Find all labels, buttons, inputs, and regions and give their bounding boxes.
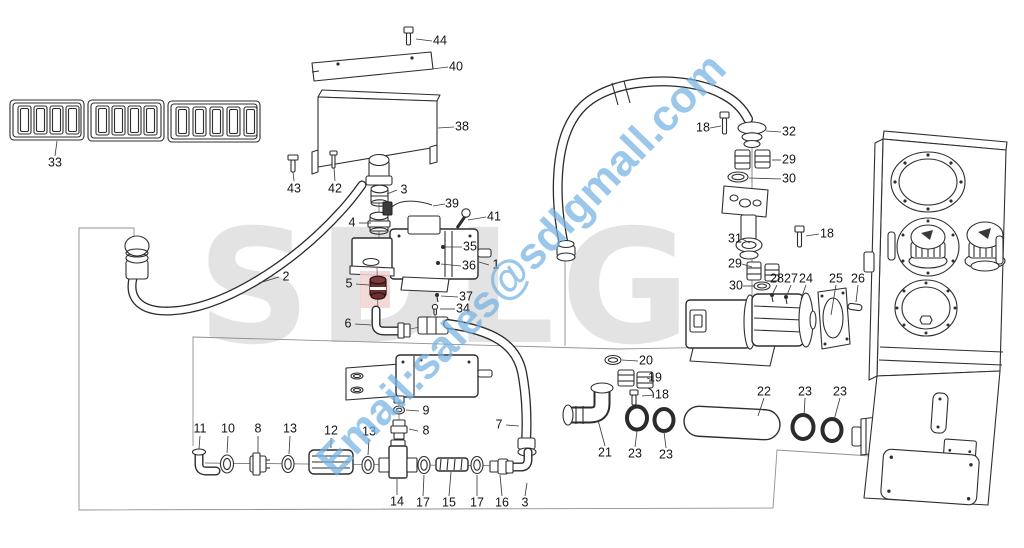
callout-2: 2 bbox=[283, 269, 290, 283]
callout-30: 30 bbox=[782, 171, 796, 185]
callout-40: 40 bbox=[449, 59, 463, 73]
elbow-32-flange bbox=[738, 122, 766, 148]
tank-bottom-slot-plate bbox=[931, 393, 949, 434]
callout-leader-17 bbox=[423, 475, 424, 496]
callout-28: 28 bbox=[770, 271, 784, 285]
switch-panel-1 bbox=[10, 100, 84, 140]
callout-6: 6 bbox=[345, 316, 352, 330]
fitting-16 bbox=[490, 459, 508, 474]
o-ring-20 bbox=[605, 356, 621, 365]
callout-33: 33 bbox=[48, 155, 62, 169]
callout-24: 24 bbox=[799, 271, 813, 285]
callout-leader-10 bbox=[227, 436, 228, 453]
switch-panel-3 bbox=[168, 101, 260, 142]
callout-leader-21 bbox=[598, 420, 605, 446]
flange-pipe-31 bbox=[722, 186, 768, 259]
clamp-23b bbox=[655, 409, 674, 431]
callout-leader-40 bbox=[432, 67, 448, 69]
callout-36: 36 bbox=[462, 258, 476, 272]
callout-25: 25 bbox=[829, 271, 843, 285]
callout-leader-18 bbox=[642, 395, 654, 396]
pump-24-assembly bbox=[686, 282, 862, 366]
clamp-23d bbox=[823, 419, 842, 441]
fitting-8-inline bbox=[250, 453, 270, 475]
callout-7: 7 bbox=[496, 417, 503, 431]
callout-leader-23 bbox=[834, 398, 840, 420]
callout-5: 5 bbox=[346, 276, 353, 290]
hose-2-connector bbox=[125, 236, 149, 279]
callout-leader-18 bbox=[806, 234, 819, 236]
callout-27: 27 bbox=[784, 271, 798, 285]
callout-17: 17 bbox=[470, 495, 484, 509]
callout-leader-26 bbox=[856, 285, 858, 302]
washer-30-upper bbox=[728, 172, 748, 182]
callout-39: 39 bbox=[445, 196, 459, 210]
callout-31: 31 bbox=[728, 231, 742, 245]
tee-14 bbox=[379, 440, 417, 478]
callout-42: 42 bbox=[328, 181, 342, 195]
callout-23: 23 bbox=[628, 446, 642, 460]
callout-13: 13 bbox=[283, 421, 297, 435]
callout-44: 44 bbox=[433, 33, 447, 47]
tank-access-plate bbox=[880, 449, 979, 506]
callout-16: 16 bbox=[495, 495, 509, 509]
tube-39-connector bbox=[383, 202, 392, 215]
tank-filler-flange bbox=[897, 218, 959, 276]
tube-22 bbox=[683, 406, 780, 441]
clamps-29-upper bbox=[735, 150, 770, 169]
bolt-36 bbox=[436, 261, 440, 265]
callout-18: 18 bbox=[696, 120, 710, 134]
callout-30: 30 bbox=[729, 278, 743, 292]
bolt-18-lower bbox=[630, 390, 638, 405]
callout-leader-23 bbox=[664, 432, 666, 448]
callout-20: 20 bbox=[639, 353, 653, 367]
o-ring-17b bbox=[471, 457, 483, 474]
switch-panel-2 bbox=[88, 100, 164, 141]
hydraulic-tank bbox=[864, 131, 1007, 505]
callout-8: 8 bbox=[255, 421, 262, 435]
exploded-parts-diagram: SDLG bbox=[0, 0, 1024, 548]
callout-22: 22 bbox=[757, 384, 771, 398]
callout-17: 17 bbox=[416, 495, 430, 509]
callout-18: 18 bbox=[655, 387, 669, 401]
callout-leader-44 bbox=[416, 39, 432, 41]
callout-18: 18 bbox=[820, 226, 834, 240]
o-ring-30-pump bbox=[754, 282, 770, 290]
callout-3: 3 bbox=[401, 182, 408, 196]
callout-leader-3 bbox=[525, 483, 527, 496]
callout-9: 9 bbox=[423, 403, 430, 417]
callout-leader-32 bbox=[766, 131, 781, 132]
bolt-18-upper bbox=[720, 112, 729, 134]
elbow-3-chain bbox=[506, 452, 528, 473]
callout-15: 15 bbox=[442, 495, 456, 509]
callout-8: 8 bbox=[423, 423, 430, 437]
o-ring-13a bbox=[282, 456, 294, 473]
callout-leader-18 bbox=[710, 126, 721, 128]
callout-41: 41 bbox=[487, 209, 501, 223]
tank-bottom-flange bbox=[895, 280, 957, 336]
callout-leader-13 bbox=[289, 436, 290, 454]
callout-23: 23 bbox=[659, 447, 673, 461]
callout-leader-30 bbox=[749, 178, 781, 179]
callout-leader-7 bbox=[506, 425, 519, 426]
callout-leader-16 bbox=[500, 475, 502, 496]
callout-10: 10 bbox=[221, 421, 235, 435]
bolt-44 bbox=[404, 27, 413, 45]
callout-43: 43 bbox=[287, 181, 301, 195]
callout-leader-28 bbox=[773, 285, 777, 293]
elbow-11 bbox=[193, 449, 217, 471]
hose-2-elbow bbox=[366, 155, 392, 186]
callout-leader-43 bbox=[293, 172, 294, 181]
tank-top-flange bbox=[891, 152, 965, 212]
callout-29: 29 bbox=[728, 256, 742, 270]
fitting-5 bbox=[370, 276, 386, 299]
tube-15 bbox=[436, 458, 468, 471]
callout-leader-42 bbox=[334, 168, 335, 181]
callout-leader-8 bbox=[409, 429, 418, 431]
o-ring-10 bbox=[221, 455, 234, 473]
callout-leader-38 bbox=[438, 127, 454, 128]
callout-leader-15 bbox=[449, 472, 451, 496]
callout-leader-33 bbox=[55, 141, 57, 156]
bolt-35 bbox=[441, 245, 445, 249]
callout-35: 35 bbox=[463, 239, 477, 253]
callout-32: 32 bbox=[782, 124, 796, 138]
bolt-43 bbox=[288, 155, 298, 172]
callout-11: 11 bbox=[194, 421, 207, 435]
o-ring-17a bbox=[418, 457, 430, 474]
clamp-23a bbox=[627, 407, 647, 430]
clamp-23c bbox=[793, 415, 814, 439]
mounting-plate-40 bbox=[312, 52, 433, 81]
tank-side-slot-right bbox=[996, 236, 1003, 264]
callout-14: 14 bbox=[390, 494, 404, 508]
parts-diagram-page: SDLG bbox=[0, 0, 1024, 548]
rubber-elbow-21 bbox=[563, 383, 613, 425]
bolt-18-mid bbox=[795, 226, 804, 247]
callout-19: 19 bbox=[648, 370, 662, 384]
callout-29: 29 bbox=[782, 152, 796, 166]
callout-4: 4 bbox=[349, 215, 356, 229]
callout-23: 23 bbox=[833, 384, 847, 398]
callout-leader-23 bbox=[635, 431, 637, 447]
callout-21: 21 bbox=[598, 445, 612, 459]
pin-26 bbox=[848, 303, 863, 311]
callout-leader-11 bbox=[199, 436, 200, 449]
callout-23: 23 bbox=[798, 384, 812, 398]
callout-38: 38 bbox=[455, 119, 469, 133]
callout-26: 26 bbox=[851, 271, 865, 285]
tank-side-slot-left bbox=[888, 232, 895, 260]
callout-3: 3 bbox=[522, 495, 529, 509]
switch-panel-group-33 bbox=[10, 100, 260, 142]
